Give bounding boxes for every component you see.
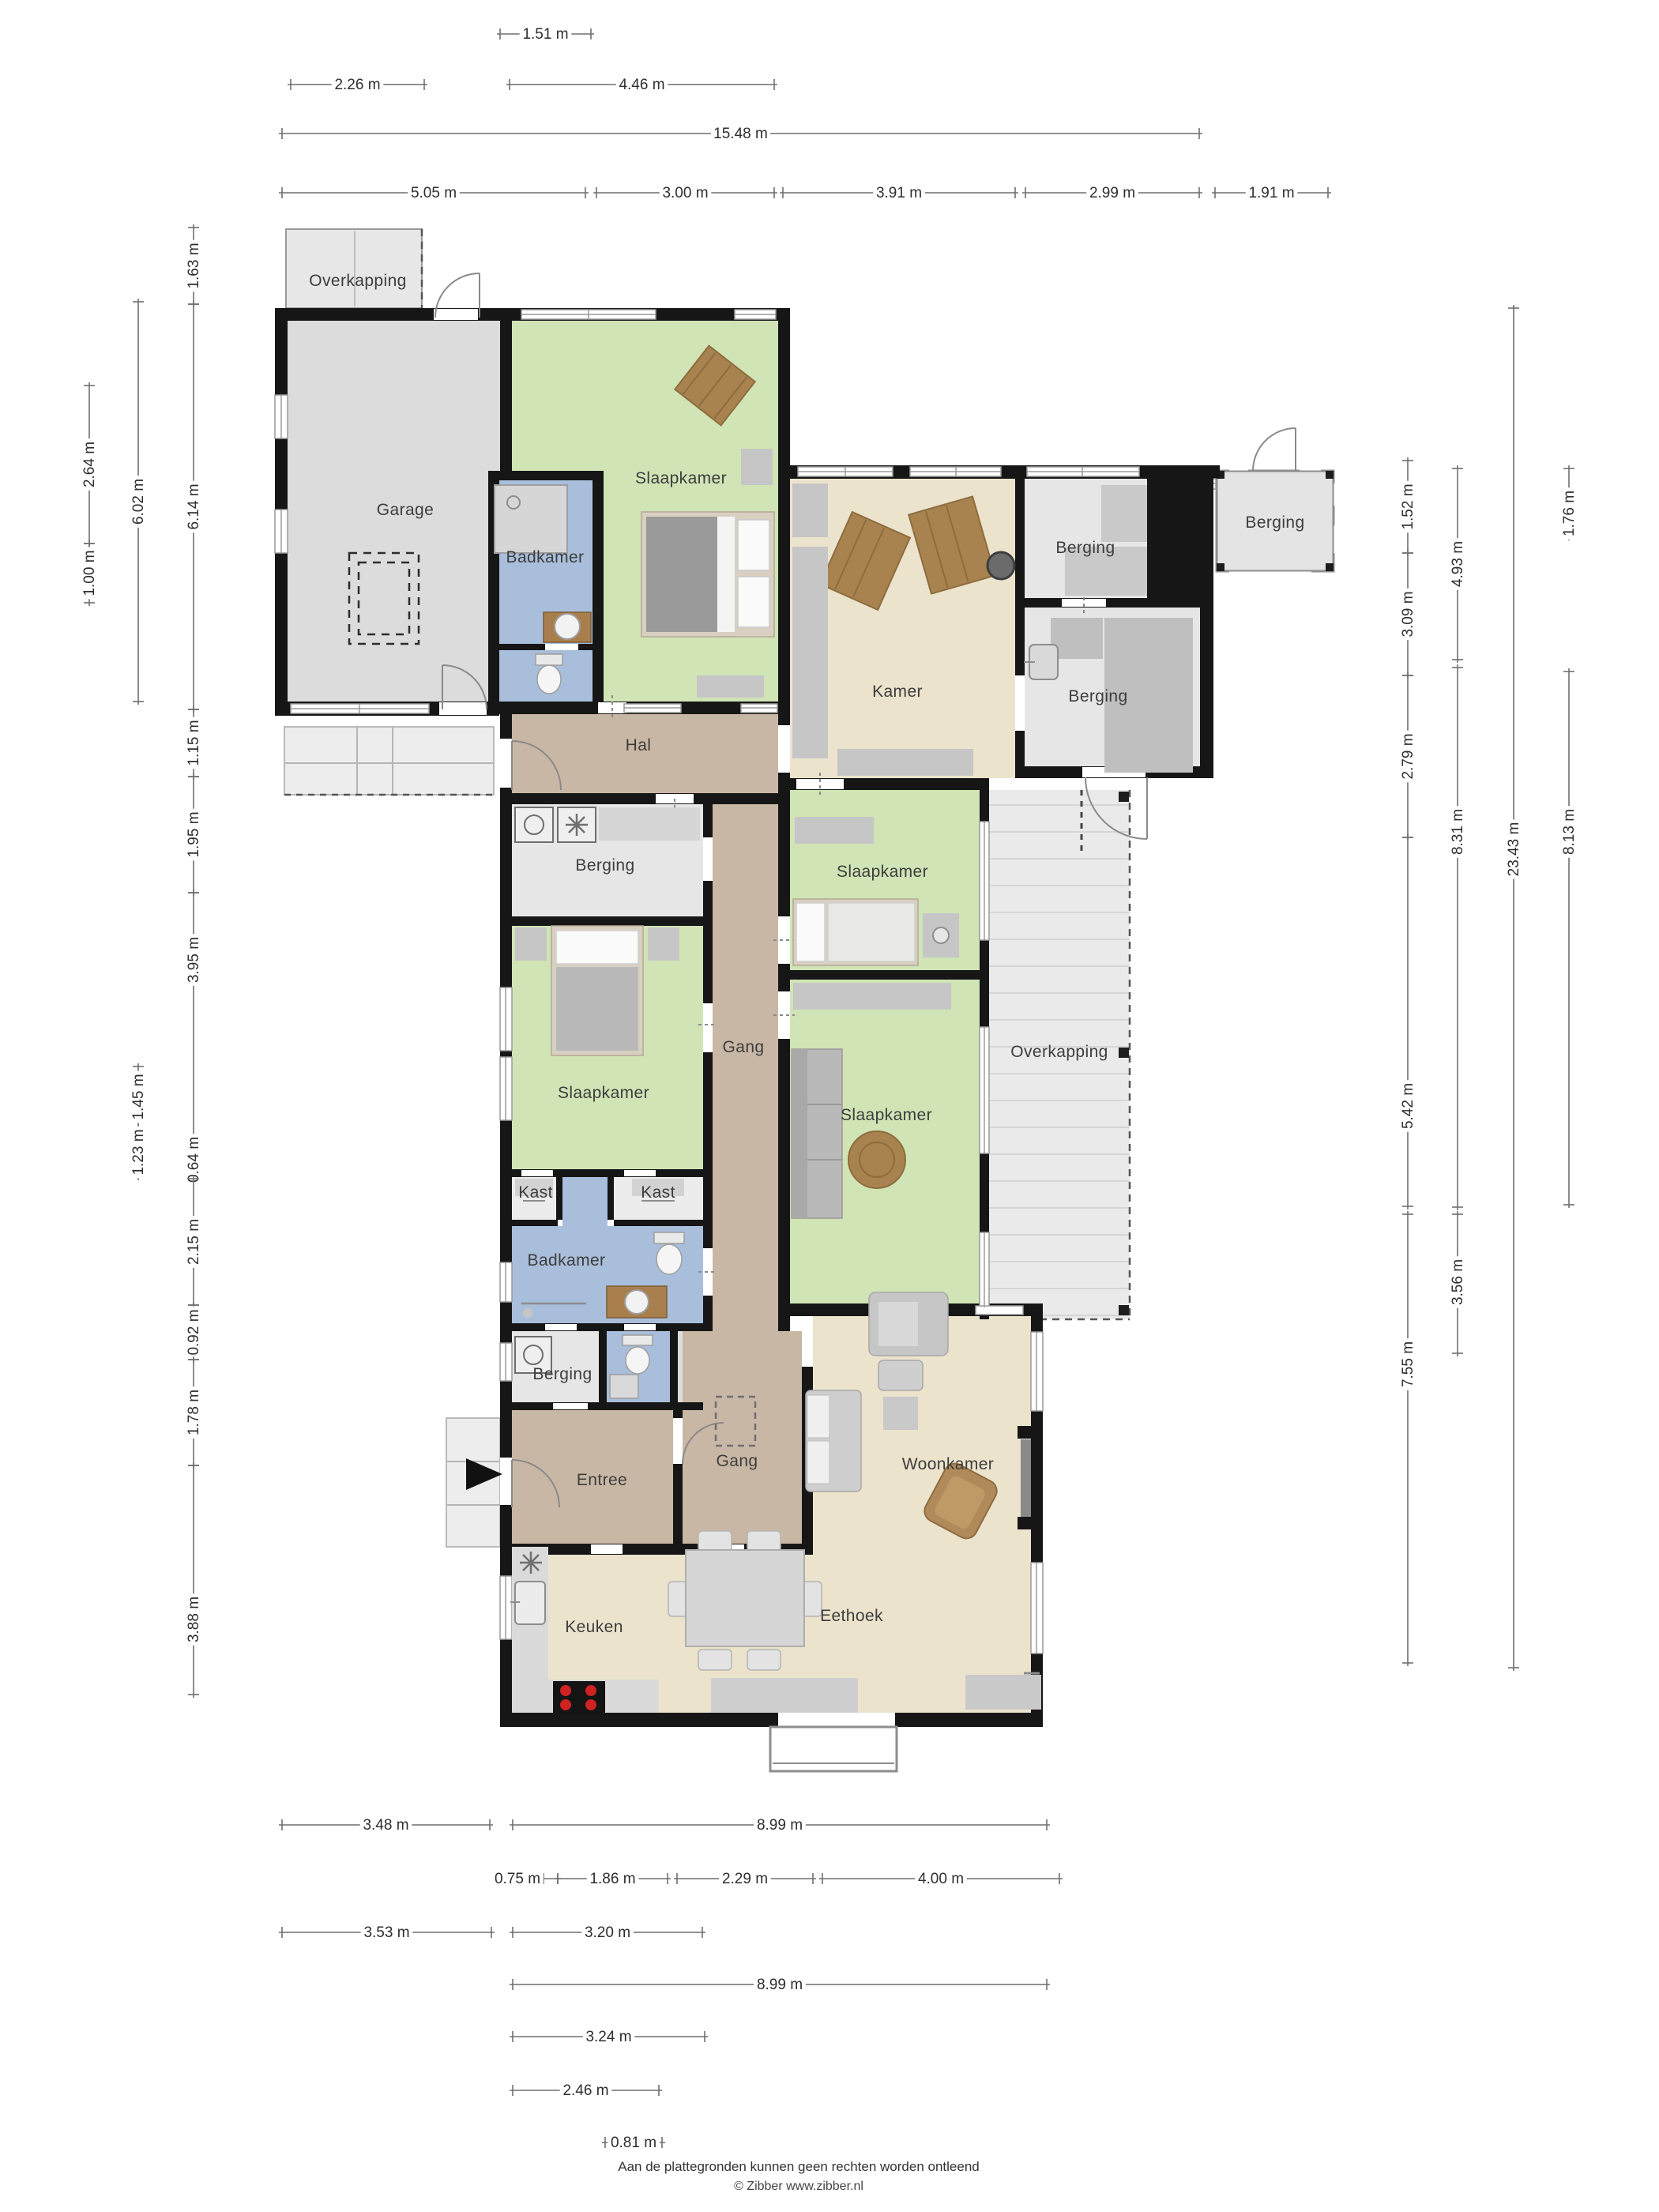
svg-text:8.13 m: 8.13 m (1561, 809, 1578, 855)
svg-text:0.92 m: 0.92 m (186, 1309, 202, 1355)
room-label-keuken: Keuken (565, 1618, 623, 1636)
svg-text:23.43 m: 23.43 m (1506, 822, 1522, 877)
dimension-vertical: 2.64 m (81, 382, 98, 547)
svg-text:1.76 m: 1.76 m (1561, 491, 1578, 536)
dimension-horizontal: 3.24 m (510, 2028, 708, 2045)
svg-text:4.46 m: 4.46 m (619, 77, 664, 93)
svg-text:3.09 m: 3.09 m (1400, 591, 1416, 637)
dimension-horizontal: 1.86 m (555, 1870, 671, 1887)
room-label-hal: Hal (626, 736, 652, 754)
svg-text:3.00 m: 3.00 m (662, 185, 708, 201)
svg-text:3.95 m: 3.95 m (186, 937, 202, 983)
svg-text:8.31 m: 8.31 m (1450, 809, 1466, 855)
room-label-gang-2: Gang (717, 1452, 758, 1470)
washing-machine-icon (515, 807, 553, 842)
shower (495, 485, 567, 553)
floor-plan: OverkappingGarageBadkamerSlaapkamerHalKa… (0, 0, 1659, 2212)
toilet-3 (623, 1335, 653, 1345)
dimension-vertical: 1.45 m (130, 1063, 147, 1130)
svg-text:2.79 m: 2.79 m (1400, 733, 1416, 779)
svg-text:3.24 m: 3.24 m (585, 2029, 631, 2045)
svg-text:1.00 m: 1.00 m (81, 550, 98, 596)
svg-text:2.15 m: 2.15 m (186, 1219, 202, 1265)
svg-text:7.55 m: 7.55 m (1400, 1341, 1416, 1387)
svg-text:2.64 m: 2.64 m (81, 442, 98, 487)
room-label-berging-3: Berging (575, 856, 634, 875)
svg-text:4.00 m: 4.00 m (918, 1871, 964, 1887)
room-label-slaapkamer-4: Slaapkamer (841, 1106, 932, 1124)
room-label-garage: Garage (377, 501, 434, 519)
dimension-vertical: 8.13 m (1560, 668, 1578, 1208)
dimension-horizontal: 4.00 m (819, 1870, 1063, 1887)
room-label-eethoek: Eethoek (820, 1607, 883, 1625)
room-label-berging-1: Berging (1055, 539, 1115, 557)
svg-text:3.91 m: 3.91 m (876, 185, 922, 201)
dimension-horizontal: 8.99 m (510, 1816, 1050, 1834)
room-label-gang-1: Gang (723, 1038, 765, 1056)
svg-text:8.99 m: 8.99 m (757, 1817, 803, 1834)
toilet-1 (536, 654, 562, 665)
room-label-berging-2: Berging (1068, 687, 1127, 705)
svg-text:5.42 m: 5.42 m (1400, 1083, 1416, 1129)
svg-text:4.93 m: 4.93 m (1450, 541, 1466, 587)
dimension-vertical: 1.95 m (185, 773, 202, 896)
room-garage (288, 321, 500, 471)
dimension-vertical: 6.02 m (130, 299, 147, 705)
svg-text:5.05 m: 5.05 m (411, 185, 457, 201)
svg-text:1.51 m: 1.51 m (522, 26, 568, 43)
svg-text:2.29 m: 2.29 m (722, 1871, 768, 1887)
stove (553, 1681, 605, 1713)
dimension-horizontal: 15.48 m (279, 125, 1202, 142)
sofa (806, 1390, 861, 1492)
dimension-horizontal: 2.26 m (288, 76, 427, 93)
dimension-horizontal: 8.99 m (510, 1976, 1050, 1993)
room-label-slaapkamer-2: Slaapkamer (558, 1084, 649, 1102)
room-label-kast-1: Kast (518, 1183, 553, 1202)
dimension-vertical: 3.56 m (1449, 1211, 1466, 1356)
dimension-vertical: 8.31 m (1449, 664, 1466, 1210)
dimension-vertical: 1.76 m (1560, 465, 1578, 540)
dimension-vertical: 1.63 m (185, 224, 202, 307)
room-label-badkamer-1: Badkamer (506, 548, 585, 566)
dimension-horizontal: 1.51 m (497, 25, 594, 43)
room-label-entree: Entree (577, 1471, 627, 1489)
room-gang-1 (709, 793, 778, 1331)
dimension-horizontal: 1.91 m (1212, 184, 1331, 201)
dimension-vertical: 1.00 m (81, 540, 98, 606)
dimension-horizontal: 0.75 m (491, 1870, 561, 1887)
svg-text:3.48 m: 3.48 m (363, 1817, 408, 1834)
footer-disclaimer: Aan de plattegronden kunnen geen rechten… (618, 2159, 979, 2174)
svg-text:1.86 m: 1.86 m (589, 1871, 635, 1887)
rug-round (848, 1131, 905, 1188)
svg-text:0.75 m: 0.75 m (495, 1871, 540, 1887)
dimension-vertical: 3.88 m (185, 1462, 202, 1698)
dimension-horizontal: 5.05 m (279, 184, 589, 201)
room-gang-2 (683, 1331, 802, 1544)
svg-text:3.53 m: 3.53 m (363, 1924, 409, 1941)
svg-text:1.15 m: 1.15 m (186, 720, 202, 766)
svg-text:15.48 m: 15.48 m (713, 126, 768, 142)
svg-text:6.02 m: 6.02 m (130, 479, 147, 525)
room-label-kast-2: Kast (641, 1183, 675, 1202)
dimension-vertical: 7.55 m (1399, 1211, 1416, 1666)
porch-garage (284, 727, 494, 795)
svg-text:2.46 m: 2.46 m (562, 2082, 608, 2099)
floorplan-page: OverkappingGarageBadkamerSlaapkamerHalKa… (0, 0, 1659, 2212)
dimension-vertical: 4.93 m (1449, 465, 1466, 663)
room-label-overkapping-tl: Overkapping (309, 272, 406, 290)
dimension-vertical: 2.79 m (1399, 672, 1416, 841)
svg-text:3.88 m: 3.88 m (186, 1597, 202, 1642)
room-label-slaapkamer-3: Slaapkamer (837, 863, 928, 881)
dimension-vertical: 23.43 m (1505, 305, 1522, 1671)
tv (1021, 1439, 1031, 1517)
room-label-slaapkamer-1: Slaapkamer (635, 469, 727, 487)
dimension-horizontal: 4.46 m (506, 76, 777, 93)
extractor-icon (520, 1552, 542, 1574)
bed-single (551, 926, 643, 1055)
bay-window (770, 1727, 897, 1771)
dimension-vertical: 3.09 m (1399, 550, 1416, 679)
svg-text:3.56 m: 3.56 m (1450, 1259, 1466, 1305)
dimension-horizontal: 2.99 m (1022, 184, 1202, 201)
dimension-vertical: 2.15 m (185, 1176, 202, 1308)
svg-text:1.45 m: 1.45 m (130, 1074, 147, 1119)
room-label-badkamer-2: Badkamer (528, 1251, 606, 1270)
svg-text:3.20 m: 3.20 m (585, 1924, 630, 1941)
dimension-horizontal: 3.20 m (510, 1924, 705, 1941)
bench (697, 675, 764, 698)
bed-double (641, 512, 774, 637)
room-label-berging-4: Berging (532, 1365, 592, 1383)
dimension-horizontal: 0.81 m (602, 2134, 665, 2151)
dimension-vertical: 1.78 m (185, 1356, 202, 1469)
dimension-horizontal: 2.46 m (510, 2082, 662, 2099)
dimension-horizontal: 2.29 m (674, 1870, 816, 1887)
svg-text:2.99 m: 2.99 m (1089, 185, 1135, 201)
svg-text:1.95 m: 1.95 m (186, 811, 202, 857)
bed-single (793, 899, 918, 965)
room-label-kamer: Kamer (872, 683, 923, 701)
svg-text:1.52 m: 1.52 m (1400, 483, 1416, 529)
sofa (792, 1049, 842, 1218)
svg-text:2.26 m: 2.26 m (334, 77, 380, 93)
svg-text:1.91 m: 1.91 m (1248, 185, 1294, 201)
svg-text:1.78 m: 1.78 m (186, 1390, 202, 1435)
svg-text:0.81 m: 0.81 m (611, 2135, 656, 2151)
footer-credit: © Zibber www.zibber.nl (734, 2180, 863, 2193)
svg-text:1.23 m: 1.23 m (130, 1129, 147, 1175)
dimension-vertical: 1.15 m (185, 706, 202, 780)
dimension-vertical: 6.14 m (185, 301, 202, 713)
sideboard (965, 1675, 1041, 1710)
stove-round (987, 552, 1014, 579)
room-label-berging-los: Berging (1245, 513, 1304, 532)
room-label-overkapping-r: Overkapping (1010, 1043, 1108, 1061)
dimension-vertical: 0.92 m (185, 1302, 202, 1363)
dimension-vertical: 1.52 m (1399, 457, 1416, 556)
dimension-horizontal: 3.91 m (780, 184, 1018, 201)
dimension-horizontal: 3.53 m (279, 1924, 495, 1941)
toilet-2 (654, 1232, 684, 1243)
dimension-vertical: 5.42 m (1399, 834, 1416, 1209)
svg-text:8.99 m: 8.99 m (757, 1977, 803, 1993)
nightstand (741, 449, 773, 485)
dimension-vertical: 1.23 m (130, 1124, 147, 1180)
svg-text:1.63 m: 1.63 m (186, 243, 202, 288)
dimension-horizontal: 3.48 m (279, 1816, 493, 1834)
dimension-horizontal: 3.00 m (593, 184, 777, 201)
dimension-vertical: 3.95 m (185, 890, 202, 1144)
room-label-woonkamer: Woonkamer (902, 1455, 994, 1473)
svg-text:6.14 m: 6.14 m (186, 483, 202, 529)
